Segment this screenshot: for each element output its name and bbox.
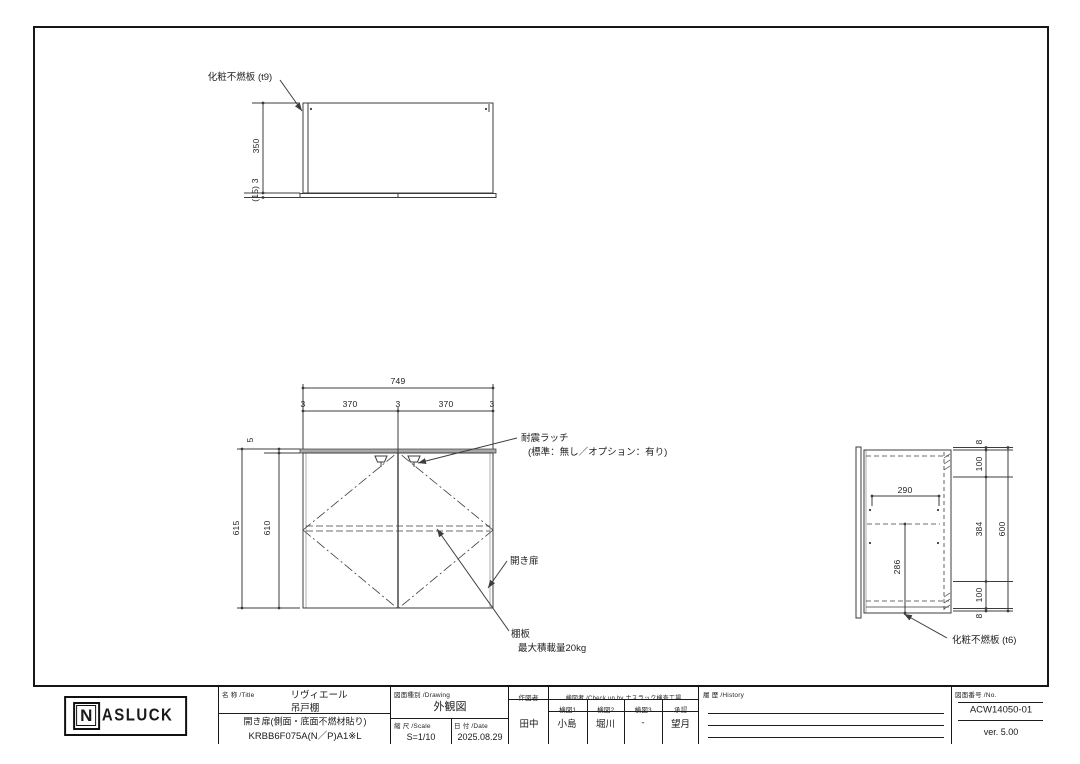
drawing-cell: 図面種別 /Drawing 外観図 縮 尺 /Scale S=1/10 日 付 … — [390, 687, 508, 744]
side-view — [856, 446, 1013, 638]
number-header: 図面番号 /No. — [955, 689, 997, 699]
check-col3-value: - — [641, 718, 644, 729]
door-label: 開き扉 — [510, 553, 539, 567]
drafter-cell: 作図者 田中 — [508, 687, 548, 744]
latch-note: (標準：無し／オプション：有り) — [528, 444, 667, 458]
number-cell: 図面番号 /No. ACW14050-01 ver. 5.00 — [951, 687, 1049, 744]
dim-r-384: 384 — [974, 522, 984, 537]
nasluck-logo: N ASLUCK — [64, 696, 188, 736]
shelf-label: 棚板 — [511, 626, 530, 640]
check-col3-header: 検図3 — [635, 707, 652, 714]
check-cell: 検図者 /Check up by ナスラック検査工場 検図1 小島 検図2 堀川… — [548, 687, 698, 744]
dim-w-3c: 3 — [490, 399, 495, 409]
name-cell: 名 称 /Title リヴィエール 吊戸棚 開き扉(側面・底面不燃材貼り) KR… — [218, 687, 390, 744]
history-line-3 — [708, 737, 944, 738]
history-header: 履 歴 /History — [703, 689, 744, 699]
dim-height-615: 615 — [231, 521, 241, 536]
check-col-1: 検図1 小島 — [549, 699, 587, 744]
shelf-note: 最大積載量20kg — [518, 640, 586, 654]
top-view — [244, 80, 496, 199]
check-col2-value: 堀川 — [596, 716, 615, 730]
dim-r-100a: 100 — [974, 457, 984, 472]
number-line-2 — [958, 720, 1043, 721]
drafter-value: 田中 — [519, 716, 538, 730]
dim-w-3b: 3 — [396, 399, 401, 409]
dim-w-370a: 370 — [343, 399, 358, 409]
dim-depth-350: 350 — [251, 139, 261, 154]
history-line-2 — [708, 725, 944, 726]
top-panel-label: 化粧不燃板 (t9) — [208, 69, 272, 83]
dim-shelf-depth-290: 290 — [898, 485, 913, 495]
drafter-header-row: 作図者 — [509, 687, 548, 700]
check-col4-value: 望月 — [671, 716, 690, 730]
drawing-sheet: 化粧不燃板 (t9) 350 (15) 3 749 3 370 3 370 3 … — [0, 0, 1080, 764]
drawing-version: ver. 5.00 — [984, 727, 1019, 737]
dim-bottom-15-3: (15) 3 — [250, 178, 260, 201]
check-col-3: 検図3 - — [624, 699, 662, 744]
dim-shelf-height-286: 286 — [892, 560, 902, 575]
product-spec: 開き扉(側面・底面不燃材貼り) — [244, 715, 367, 728]
dim-w-3a: 3 — [301, 399, 306, 409]
side-panel-label: 化粧不燃板 (t6) — [952, 632, 1016, 646]
dim-r-100b: 100 — [974, 588, 984, 603]
logo-n-letter: N — [76, 705, 96, 726]
scale-date-divider — [451, 718, 452, 744]
check-col4-header: 承認 — [674, 707, 687, 714]
logo-n-box: N — [73, 702, 100, 730]
check-col1-value: 小島 — [557, 716, 576, 730]
check-col1-header: 検図1 — [559, 707, 576, 714]
check-col2-header: 検図2 — [597, 707, 614, 714]
logo-cell: N ASLUCK — [33, 687, 218, 744]
front-view — [237, 384, 517, 631]
logo-wordmark: ASLUCK — [102, 706, 174, 726]
dim-width-749: 749 — [391, 376, 406, 386]
name-header: 名 称 /Title — [222, 689, 254, 699]
date-header: 日 付 /Date — [454, 720, 488, 730]
check-col-2: 検図2 堀川 — [587, 699, 625, 744]
dim-height-600: 600 — [997, 522, 1007, 537]
product-type: 吊戸棚 — [291, 700, 320, 714]
latch-label: 耐震ラッチ — [521, 430, 569, 444]
drawing-type: 外観図 — [434, 698, 467, 714]
drawing-divider — [391, 718, 508, 719]
dim-r-8b: 8 — [974, 614, 984, 619]
scale-header: 縮 尺 /Scale — [394, 720, 431, 730]
product-series: リヴィエール — [290, 687, 347, 701]
date-value: 2025.08.29 — [457, 732, 502, 742]
drafter-header: 作図者 — [518, 695, 538, 702]
check-col-4: 承認 望月 — [662, 699, 700, 744]
history-cell: 履 歴 /History — [698, 687, 951, 744]
drawing-number: ACW14050-01 — [970, 705, 1032, 716]
product-code: KRBB6F075A(N／P)A1※L — [248, 728, 361, 742]
dim-height-610: 610 — [262, 521, 272, 536]
dim-gap-5: 5 — [245, 438, 255, 443]
dim-w-370b: 370 — [439, 399, 454, 409]
dim-r-8a: 8 — [974, 440, 984, 445]
title-block: N ASLUCK 名 称 /Title リヴィエール 吊戸棚 開き扉(側面・底面… — [33, 685, 1049, 744]
number-line-1 — [958, 702, 1043, 703]
history-line-1 — [708, 713, 944, 714]
scale-value: S=1/10 — [407, 732, 436, 742]
